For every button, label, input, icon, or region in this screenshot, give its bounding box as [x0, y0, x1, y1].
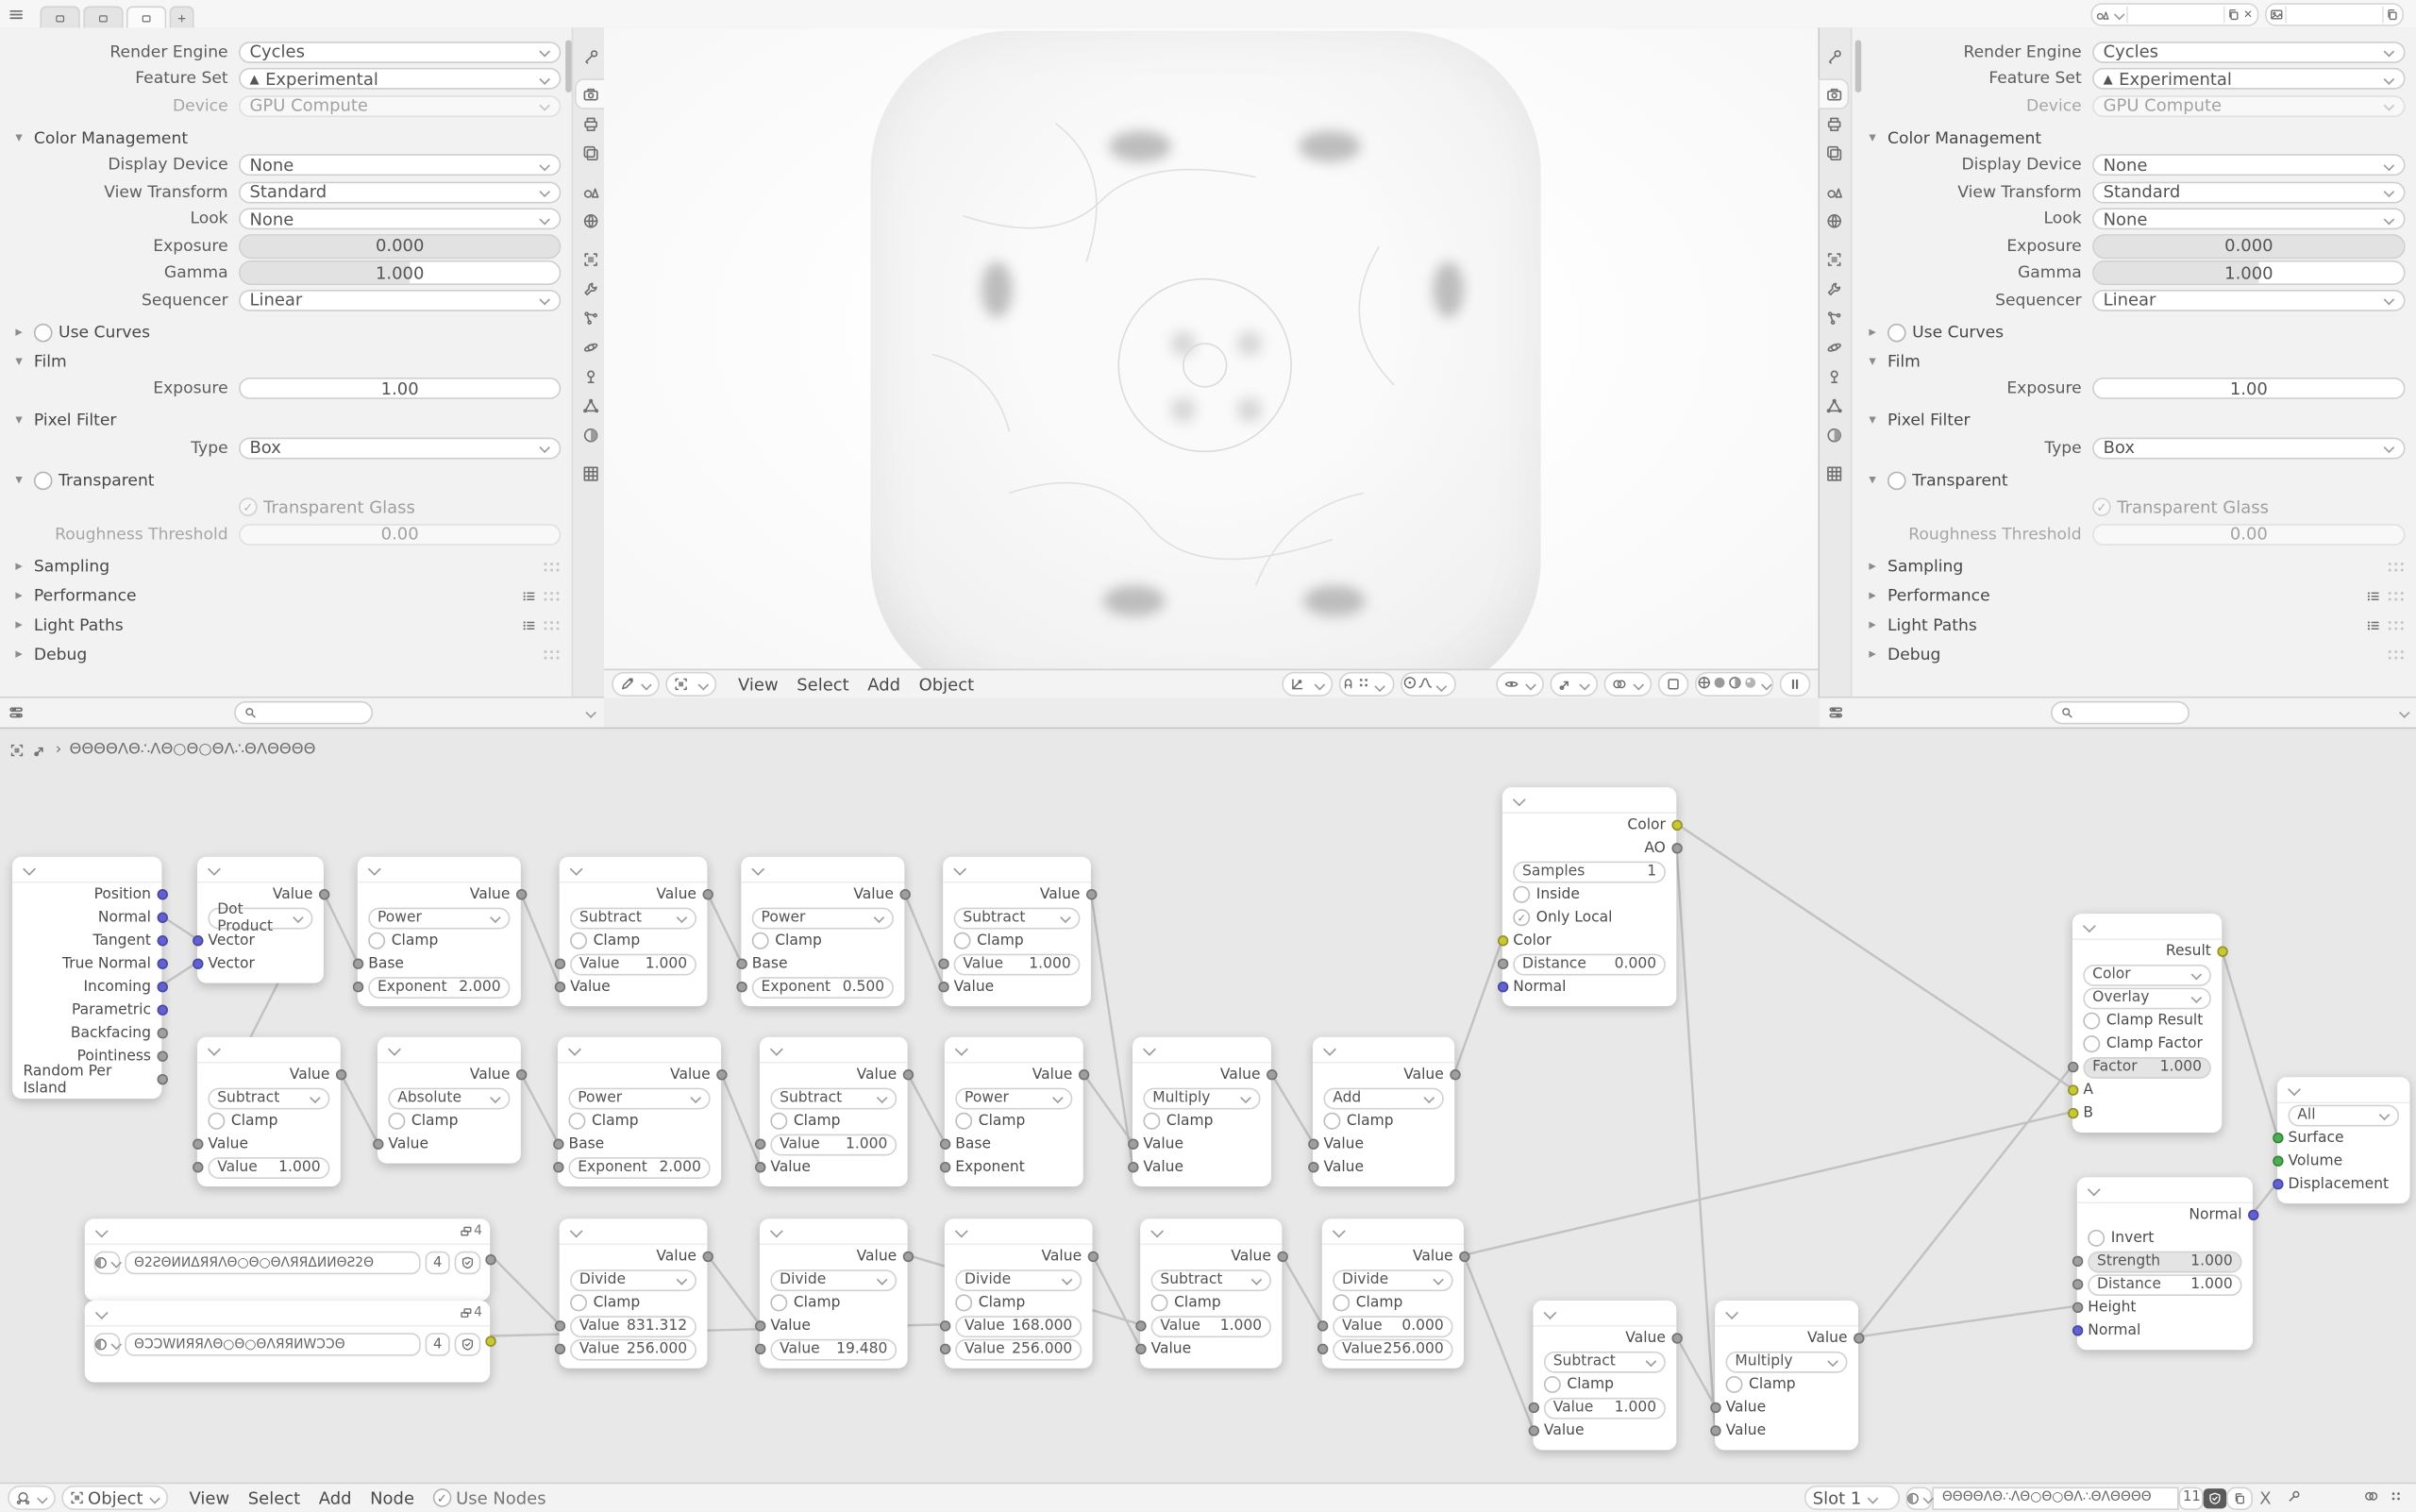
operation-dropdown[interactable]: Overlay [2083, 987, 2211, 1009]
scene-selector[interactable] [2091, 2, 2259, 25]
math-node[interactable]: ValueSubtractClampValue1.000Value [560, 857, 708, 1006]
math-node[interactable]: ValueSubtractClampValue1.000Value [760, 1037, 908, 1186]
checkbox-icon[interactable] [954, 932, 971, 949]
math-node[interactable]: ValueAddClampValueValue [1313, 1037, 1454, 1186]
scrollbar[interactable] [565, 40, 572, 92]
operation-dropdown[interactable]: Power [955, 1087, 1072, 1109]
node-canvas[interactable]: ›ΘΘΘΘΛΘ∴ΛΘ○Θ○ΘΛ∴ΘΛΘΘΘΘ PositionNormalTan… [0, 729, 2416, 1482]
mode-dropdown[interactable] [665, 672, 716, 697]
panel-options-button[interactable] [2396, 709, 2410, 716]
value-field[interactable]: Value1.000 [208, 1156, 329, 1178]
output-socket[interactable] [157, 1074, 167, 1084]
node-header[interactable] [197, 1037, 341, 1064]
orientation-dropdown[interactable] [1282, 672, 1333, 697]
hamburger-menu-icon[interactable] [8, 6, 25, 23]
output-socket[interactable] [484, 1336, 495, 1347]
input-socket[interactable] [554, 982, 564, 992]
preset-list-icon[interactable] [2365, 588, 2380, 603]
properties-tab-physics[interactable] [577, 333, 604, 361]
operation-dropdown[interactable]: Multiply [1143, 1087, 1260, 1109]
slider-exposure[interactable]: 0.000 [2092, 234, 2405, 259]
input-socket[interactable] [1709, 1403, 1720, 1413]
operation-dropdown[interactable]: Subtract [954, 907, 1081, 929]
input-socket[interactable] [2272, 1133, 2282, 1143]
input-socket[interactable] [192, 935, 202, 946]
snap-toggle[interactable] [1340, 674, 1355, 694]
properties-tab-tool[interactable] [577, 42, 604, 69]
operation-dropdown[interactable]: Add [1323, 1087, 1443, 1109]
node-header[interactable] [1313, 1037, 1454, 1064]
section-checkbox[interactable] [34, 471, 53, 490]
input-socket[interactable] [192, 1162, 202, 1172]
properties-tab-constraints[interactable] [577, 362, 604, 390]
node-header[interactable] [2072, 914, 2222, 940]
node-header[interactable] [741, 857, 904, 883]
unlink-scene-icon[interactable] [2242, 8, 2255, 20]
drag-grip-icon[interactable] [543, 648, 562, 661]
properties-tab-view-layer[interactable] [577, 139, 604, 166]
checkbox-icon[interactable] [2083, 1035, 2100, 1052]
proportional-falloff[interactable] [1418, 674, 1454, 694]
section-header-light-paths[interactable]: ▸Light Paths [1869, 615, 2405, 634]
input-socket[interactable] [736, 959, 747, 969]
dropdown-type[interactable]: Box [2092, 437, 2405, 459]
math-node[interactable]: ValueMultiplyClampValueValue [1715, 1301, 1858, 1450]
properties-tab-tool[interactable] [1820, 42, 1847, 69]
node-header[interactable] [943, 857, 1091, 883]
operation-dropdown[interactable]: Subtract [1544, 1351, 1666, 1372]
menu-add[interactable]: Add [858, 674, 909, 694]
output-socket[interactable] [1266, 1069, 1276, 1080]
input-socket[interactable] [2072, 1279, 2082, 1289]
material-name-field[interactable]: ΘΘΘΘΛΘ∴ΛΘ○Θ○ΘΛ∴ΘΛΘΘΘΘ [1933, 1487, 2179, 1509]
menu-select[interactable]: Select [787, 674, 858, 694]
ambient-occlusion-node[interactable]: ColorAOSamples1Inside✓Only LocalColorDis… [1502, 787, 1676, 1006]
operation-dropdown[interactable]: Divide [1333, 1268, 1452, 1290]
shading-matprev[interactable] [1727, 674, 1742, 694]
math-node[interactable]: ValueSubtractClampValue1.000Value [1140, 1218, 1282, 1368]
image-name-field[interactable]: Θ2ƧΘИИΔЯЯΛΘ○Θ○ΘΛЯЯΔИИΘƧ2Θ [125, 1252, 420, 1274]
node-header[interactable] [760, 1037, 908, 1064]
input-socket[interactable] [939, 1162, 949, 1172]
operation-dropdown[interactable]: Absolute [388, 1087, 510, 1109]
math-node[interactable]: ValueMultiplyClampValueValue [1132, 1037, 1271, 1186]
math-node[interactable]: ValueDivideClampValueValue19.480 [760, 1218, 908, 1368]
operation-dropdown[interactable]: Divide [770, 1268, 897, 1290]
workspace-tab-2[interactable] [83, 6, 123, 28]
fake-user-button[interactable] [455, 1333, 481, 1355]
section-header-pixel-filter[interactable]: ▾Pixel Filter [1869, 412, 2405, 430]
users-count[interactable]: 4 [426, 1333, 450, 1355]
section-checkbox[interactable] [34, 323, 53, 342]
input-socket[interactable] [1134, 1320, 1145, 1331]
operation-dropdown[interactable]: Divide [955, 1268, 1082, 1290]
operation-dropdown[interactable]: Subtract [570, 907, 696, 929]
properties-tab-material[interactable] [1820, 421, 1847, 448]
hamburger-menu-icon[interactable] [8, 6, 25, 23]
node-header[interactable] [945, 1037, 1083, 1064]
editor-type-button[interactable] [612, 672, 660, 697]
operation-dropdown[interactable]: Subtract [770, 1087, 897, 1109]
geometry-node[interactable]: PositionNormalTangentTrue NormalIncoming… [12, 857, 161, 1099]
fake-user-button[interactable] [2204, 1487, 2226, 1507]
browse-material-button[interactable] [1906, 1487, 1933, 1509]
input-socket[interactable] [2067, 1062, 2077, 1072]
shader-type-dropdown[interactable]: Object [61, 1486, 167, 1510]
properties-tab-object-data[interactable] [577, 392, 604, 419]
output-socket[interactable] [1671, 1333, 1682, 1343]
value-field[interactable]: Exponent0.500 [752, 976, 894, 998]
image-name-field[interactable]: ΘƆƆWИЯЯΛΘ○Θ○ΘΛЯЯИWƆƆΘ [125, 1333, 420, 1355]
properties-tab-world[interactable] [1820, 207, 1847, 234]
checkbox-icon[interactable] [2083, 1013, 2100, 1030]
output-socket[interactable] [899, 889, 910, 899]
dropdown-feature-set[interactable]: ▲Experimental [2092, 68, 2405, 90]
workspace-tab-1[interactable] [40, 6, 79, 28]
node-header[interactable]: 4 [85, 1301, 490, 1327]
output-socket[interactable] [157, 1004, 167, 1015]
input-socket[interactable] [736, 982, 747, 992]
section-header-sampling[interactable]: ▸Sampling [1869, 557, 2405, 576]
drag-grip-icon[interactable] [2387, 648, 2406, 661]
properties-tab-texture[interactable] [1820, 460, 1847, 487]
input-socket[interactable] [1307, 1139, 1317, 1150]
value-field[interactable]: Value1.000 [954, 953, 1081, 975]
material-output-node[interactable]: AllSurfaceVolumeDisplacement [2277, 1077, 2409, 1203]
output-socket[interactable] [318, 889, 328, 899]
input-socket[interactable] [754, 1139, 764, 1150]
node-header[interactable] [2277, 1077, 2409, 1103]
section-header-sampling[interactable]: ▸Sampling [15, 557, 561, 576]
math-node[interactable]: ValueSubtractClampValue1.000Value [1533, 1301, 1676, 1450]
input-socket[interactable] [754, 1162, 764, 1172]
value-field[interactable]: Value1.000 [770, 1134, 897, 1155]
preset-list-icon[interactable] [2365, 617, 2380, 632]
operation-dropdown[interactable]: All [2288, 1104, 2399, 1126]
properties-tab-constraints[interactable] [1820, 362, 1847, 390]
input-socket[interactable] [939, 1320, 949, 1331]
input-socket[interactable] [192, 1139, 202, 1150]
input-socket[interactable] [2067, 1108, 2077, 1118]
input-socket[interactable] [2067, 1084, 2077, 1095]
input-socket[interactable] [552, 1162, 562, 1172]
output-socket[interactable] [1671, 843, 1682, 853]
section-header-debug[interactable]: ▸Debug [15, 645, 561, 664]
output-socket[interactable] [1458, 1252, 1468, 1262]
image-data-node[interactable]: 4ΘƆƆWИЯЯΛΘ○Θ○ΘΛЯЯИWƆƆΘ4 [85, 1301, 490, 1383]
new-view-layer-icon[interactable] [2385, 7, 2399, 21]
value-field[interactable]: Factor1.000 [2083, 1056, 2211, 1078]
checkbox-transparent-glass[interactable]: ✓Transparent Glass [2092, 497, 2269, 517]
input-socket[interactable] [2272, 1179, 2282, 1189]
menu-add[interactable]: Add [310, 1487, 361, 1507]
section-header-color-management[interactable]: ▾Color Management [1869, 128, 2405, 147]
output-socket[interactable] [515, 1069, 526, 1080]
operation-dropdown[interactable]: Dot Product [208, 907, 312, 929]
dropdown-sequencer[interactable]: Linear [2092, 290, 2405, 311]
preset-list-icon[interactable] [521, 617, 536, 632]
output-socket[interactable] [1450, 1069, 1460, 1080]
checkbox-icon[interactable] [1726, 1376, 1743, 1393]
checkbox-icon[interactable] [770, 1113, 787, 1130]
properties-tab-object[interactable] [577, 245, 604, 273]
properties-tab-output[interactable] [1820, 109, 1847, 137]
input-socket[interactable] [1134, 1344, 1145, 1354]
input-socket[interactable] [1497, 982, 1507, 992]
eye-button[interactable] [1496, 672, 1544, 697]
node-header[interactable]: 4 [85, 1218, 490, 1245]
output-socket[interactable] [157, 959, 167, 969]
snap-options[interactable] [1356, 674, 1393, 694]
dropdown-display-device[interactable]: None [239, 155, 561, 176]
math-node[interactable]: ValuePowerClampBaseExponent2.000 [358, 857, 521, 1006]
math-node[interactable]: ValueDivideClampValue168.000Value256.000 [945, 1218, 1093, 1368]
checkbox-icon[interactable] [770, 1294, 787, 1311]
xray-button[interactable] [1658, 672, 1689, 697]
properties-tab-output[interactable] [577, 109, 604, 137]
checkbox-icon[interactable] [1143, 1113, 1160, 1130]
output-socket[interactable] [1087, 1252, 1098, 1262]
properties-tab-texture[interactable] [577, 460, 604, 487]
output-socket[interactable] [157, 889, 167, 899]
node-header[interactable] [1715, 1301, 1858, 1327]
3d-viewport[interactable]: ViewSelectAddObject [604, 27, 1819, 697]
output-socket[interactable] [157, 913, 167, 923]
image-data-node[interactable]: 4Θ2ƧΘИИΔЯЯΛΘ○Θ○ΘΛЯЯΔИИΘƧ2Θ4 [85, 1218, 490, 1301]
node-header[interactable] [1132, 1037, 1271, 1064]
output-socket[interactable] [902, 1252, 913, 1262]
input-socket[interactable] [1127, 1139, 1137, 1150]
dropdown-view-transform[interactable]: Standard [239, 181, 561, 203]
scrollbar[interactable] [1855, 40, 1862, 92]
properties-tab-render[interactable] [1820, 80, 1847, 108]
checkbox-icon[interactable] [568, 1113, 585, 1130]
input-socket[interactable] [554, 1320, 564, 1331]
new-material-button[interactable] [2227, 1487, 2254, 1509]
input-socket[interactable] [937, 959, 948, 969]
section-header-color-management[interactable]: ▾Color Management [15, 128, 561, 147]
workspace-tab-3[interactable] [126, 6, 166, 28]
add-workspace-button[interactable] [170, 6, 194, 28]
section-header-performance[interactable]: ▸Performance [15, 586, 561, 605]
node-header[interactable] [1533, 1301, 1676, 1327]
browse-image-button[interactable] [94, 1333, 121, 1355]
checkbox-icon[interactable]: ✓ [1513, 909, 1530, 926]
value-field[interactable]: Exponent2.000 [368, 976, 510, 998]
properties-tab-scene[interactable] [1820, 177, 1847, 205]
input-socket[interactable] [2072, 1325, 2082, 1336]
menu-view[interactable]: View [180, 1487, 239, 1507]
output-socket[interactable] [157, 1050, 167, 1061]
value-field[interactable]: Distance0.000 [1513, 953, 1666, 975]
browse-image-button[interactable] [94, 1252, 121, 1274]
overlays-button[interactable] [1604, 672, 1653, 697]
gizmo-button[interactable] [1550, 672, 1598, 697]
checkbox-icon[interactable] [208, 1113, 225, 1130]
node-header[interactable] [197, 857, 324, 883]
input-socket[interactable] [939, 1139, 949, 1150]
checkbox-icon[interactable] [955, 1294, 972, 1311]
value-field[interactable]: Value256.000 [955, 1338, 1082, 1360]
operation-dropdown[interactable]: Multiply [1726, 1351, 1848, 1372]
preset-list-icon[interactable] [521, 588, 536, 603]
input-socket[interactable] [372, 1139, 382, 1150]
section-header-film[interactable]: ▾Film [15, 352, 561, 371]
number-field-roughness-threshold[interactable]: 0.00 [2092, 524, 2405, 546]
math-node[interactable]: ValuePowerClampBaseExponent2.000 [558, 1037, 721, 1186]
output-socket[interactable] [157, 935, 167, 946]
properties-tab-scene[interactable] [577, 177, 604, 205]
bump-node[interactable]: NormalInvertStrength1.000Distance1.000He… [2077, 1177, 2253, 1350]
input-socket[interactable] [2072, 1302, 2082, 1313]
output-socket[interactable] [2247, 1210, 2257, 1220]
properties-tab-world[interactable] [577, 207, 604, 234]
scene-name-field[interactable] [2126, 6, 2224, 23]
value-field[interactable]: Exponent2.000 [568, 1156, 710, 1178]
section-header-pixel-filter[interactable]: ▾Pixel Filter [15, 412, 561, 430]
input-socket[interactable] [754, 1344, 764, 1354]
section-header-debug[interactable]: ▸Debug [1869, 645, 2405, 664]
filter-button[interactable] [1827, 704, 1844, 721]
math-node[interactable]: ValuePowerClampBaseExponent0.500 [741, 857, 904, 1006]
number-field-exposure[interactable]: 1.00 [239, 378, 561, 399]
footer-overlays-button[interactable] [2363, 1487, 2378, 1507]
output-socket[interactable] [484, 1254, 495, 1265]
properties-tab-material[interactable] [577, 421, 604, 448]
node-header[interactable] [358, 857, 521, 883]
output-socket[interactable] [902, 1069, 913, 1080]
fake-user-button[interactable] [455, 1252, 481, 1274]
output-socket[interactable] [1085, 889, 1096, 899]
properties-tab-render[interactable] [577, 80, 604, 108]
pause-button[interactable] [1780, 672, 1811, 697]
value-field[interactable]: Value831.312 [570, 1315, 696, 1336]
unlink-button[interactable]: X [2254, 1487, 2277, 1507]
panel-options-button[interactable] [582, 709, 596, 716]
node-header[interactable] [12, 857, 161, 883]
checkbox-icon[interactable] [368, 932, 385, 949]
output-socket[interactable] [702, 889, 713, 899]
section-checkbox[interactable] [1887, 323, 1906, 342]
operation-dropdown[interactable]: Subtract [208, 1087, 329, 1109]
section-header-use-curves[interactable]: ▸Use Curves [1869, 323, 2405, 342]
output-socket[interactable] [2217, 946, 2227, 956]
pin-button[interactable] [2287, 1487, 2302, 1507]
drag-grip-icon[interactable] [543, 560, 562, 572]
view-layer-selector[interactable] [2265, 2, 2404, 25]
users-count[interactable]: 4 [426, 1252, 450, 1274]
checkbox-icon[interactable] [570, 932, 587, 949]
input-socket[interactable] [554, 959, 564, 969]
properties-tab-object-data[interactable] [1820, 392, 1847, 419]
shading-solid[interactable] [1712, 674, 1727, 694]
section-header-transparent[interactable]: ▾Transparent [15, 471, 561, 490]
operation-dropdown[interactable]: Power [568, 1087, 710, 1109]
footer-dots4-button[interactable] [2389, 1487, 2404, 1507]
checkbox-icon[interactable] [1513, 886, 1530, 903]
number-field-exposure[interactable]: 1.00 [2092, 378, 2405, 399]
section-header-transparent[interactable]: ▾Transparent [1869, 471, 2405, 490]
material-users-count[interactable]: 11 [2179, 1487, 2204, 1509]
properties-tab-particles[interactable] [1820, 304, 1847, 331]
vector-math-node[interactable]: ValueDot ProductVectorVector [197, 857, 324, 983]
checkbox-icon[interactable] [1544, 1376, 1561, 1393]
drag-grip-icon[interactable] [2387, 619, 2406, 631]
drag-grip-icon[interactable] [2387, 560, 2406, 572]
output-socket[interactable] [157, 1028, 167, 1038]
input-socket[interactable] [1528, 1403, 1538, 1413]
section-header-use-curves[interactable]: ▸Use Curves [15, 323, 561, 342]
drag-grip-icon[interactable] [543, 619, 562, 631]
math-node[interactable]: ValuePowerClampBaseExponent [945, 1037, 1083, 1186]
input-socket[interactable] [1317, 1344, 1327, 1354]
math-node[interactable]: ValueDivideClampValue0.000Value256.000 [1322, 1218, 1464, 1368]
checkbox-icon[interactable] [2088, 1230, 2105, 1247]
input-socket[interactable] [939, 1344, 949, 1354]
node-header[interactable] [377, 1037, 521, 1064]
search-input[interactable] [2051, 701, 2189, 724]
input-socket[interactable] [1127, 1162, 1137, 1172]
dropdown-display-device[interactable]: None [2092, 155, 2405, 176]
proportional-toggle[interactable] [1402, 674, 1418, 694]
node-header[interactable] [2077, 1177, 2253, 1203]
menu-view[interactable]: View [729, 674, 787, 694]
new-scene-icon[interactable] [2226, 7, 2240, 21]
output-socket[interactable] [1078, 1069, 1088, 1080]
input-socket[interactable] [754, 1320, 764, 1331]
dropdown-render-engine[interactable]: Cycles [2092, 42, 2405, 63]
dropdown-type[interactable]: Box [239, 437, 561, 459]
number-field-roughness-threshold[interactable]: 0.00 [239, 524, 561, 546]
operation-dropdown[interactable]: Power [368, 907, 510, 929]
dropdown-device[interactable]: GPU Compute [239, 95, 561, 117]
properties-tab-particles[interactable] [577, 304, 604, 331]
dropdown-sequencer[interactable]: Linear [239, 290, 561, 311]
mix-color-node[interactable]: ResultColorOverlayClamp ResultClamp Fact… [2072, 914, 2222, 1133]
properties-tab-physics[interactable] [1820, 333, 1847, 361]
properties-tab-modifiers[interactable] [1820, 275, 1847, 302]
output-socket[interactable] [1277, 1252, 1287, 1262]
input-socket[interactable] [1528, 1425, 1538, 1436]
input-socket[interactable] [1497, 959, 1507, 969]
checkbox-icon[interactable] [388, 1113, 405, 1130]
properties-tab-object[interactable] [1820, 245, 1847, 273]
value-field[interactable]: Value1.000 [1544, 1397, 1666, 1419]
math-node[interactable]: ValueAbsoluteClampValue [377, 1037, 521, 1164]
use-nodes-checkbox[interactable]: ✓Use Nodes [433, 1487, 546, 1507]
input-socket[interactable] [2272, 1155, 2282, 1166]
node-header[interactable] [1140, 1218, 1282, 1245]
dropdown-look[interactable]: None [239, 209, 561, 230]
node-header[interactable] [1502, 787, 1676, 814]
section-checkbox[interactable] [1887, 471, 1906, 490]
value-field[interactable]: Value168.000 [955, 1315, 1082, 1336]
properties-tab-modifiers[interactable] [577, 275, 604, 302]
slider-exposure[interactable]: 0.000 [239, 234, 561, 259]
input-socket[interactable] [552, 1139, 562, 1150]
value-field[interactable]: Distance1.000 [2088, 1273, 2241, 1295]
checkbox-icon[interactable] [752, 932, 769, 949]
checkbox-icon[interactable] [1323, 1113, 1340, 1130]
menu-object[interactable]: Object [910, 674, 983, 694]
math-node[interactable]: ValueDivideClampValue831.312Value256.000 [560, 1218, 708, 1368]
input-socket[interactable] [1709, 1425, 1720, 1436]
input-socket[interactable] [352, 982, 362, 992]
slider-gamma[interactable]: 1.000 [2092, 260, 2405, 285]
value-field[interactable]: Samples1 [1513, 861, 1666, 882]
node-header[interactable] [945, 1218, 1093, 1245]
input-socket[interactable] [352, 959, 362, 969]
